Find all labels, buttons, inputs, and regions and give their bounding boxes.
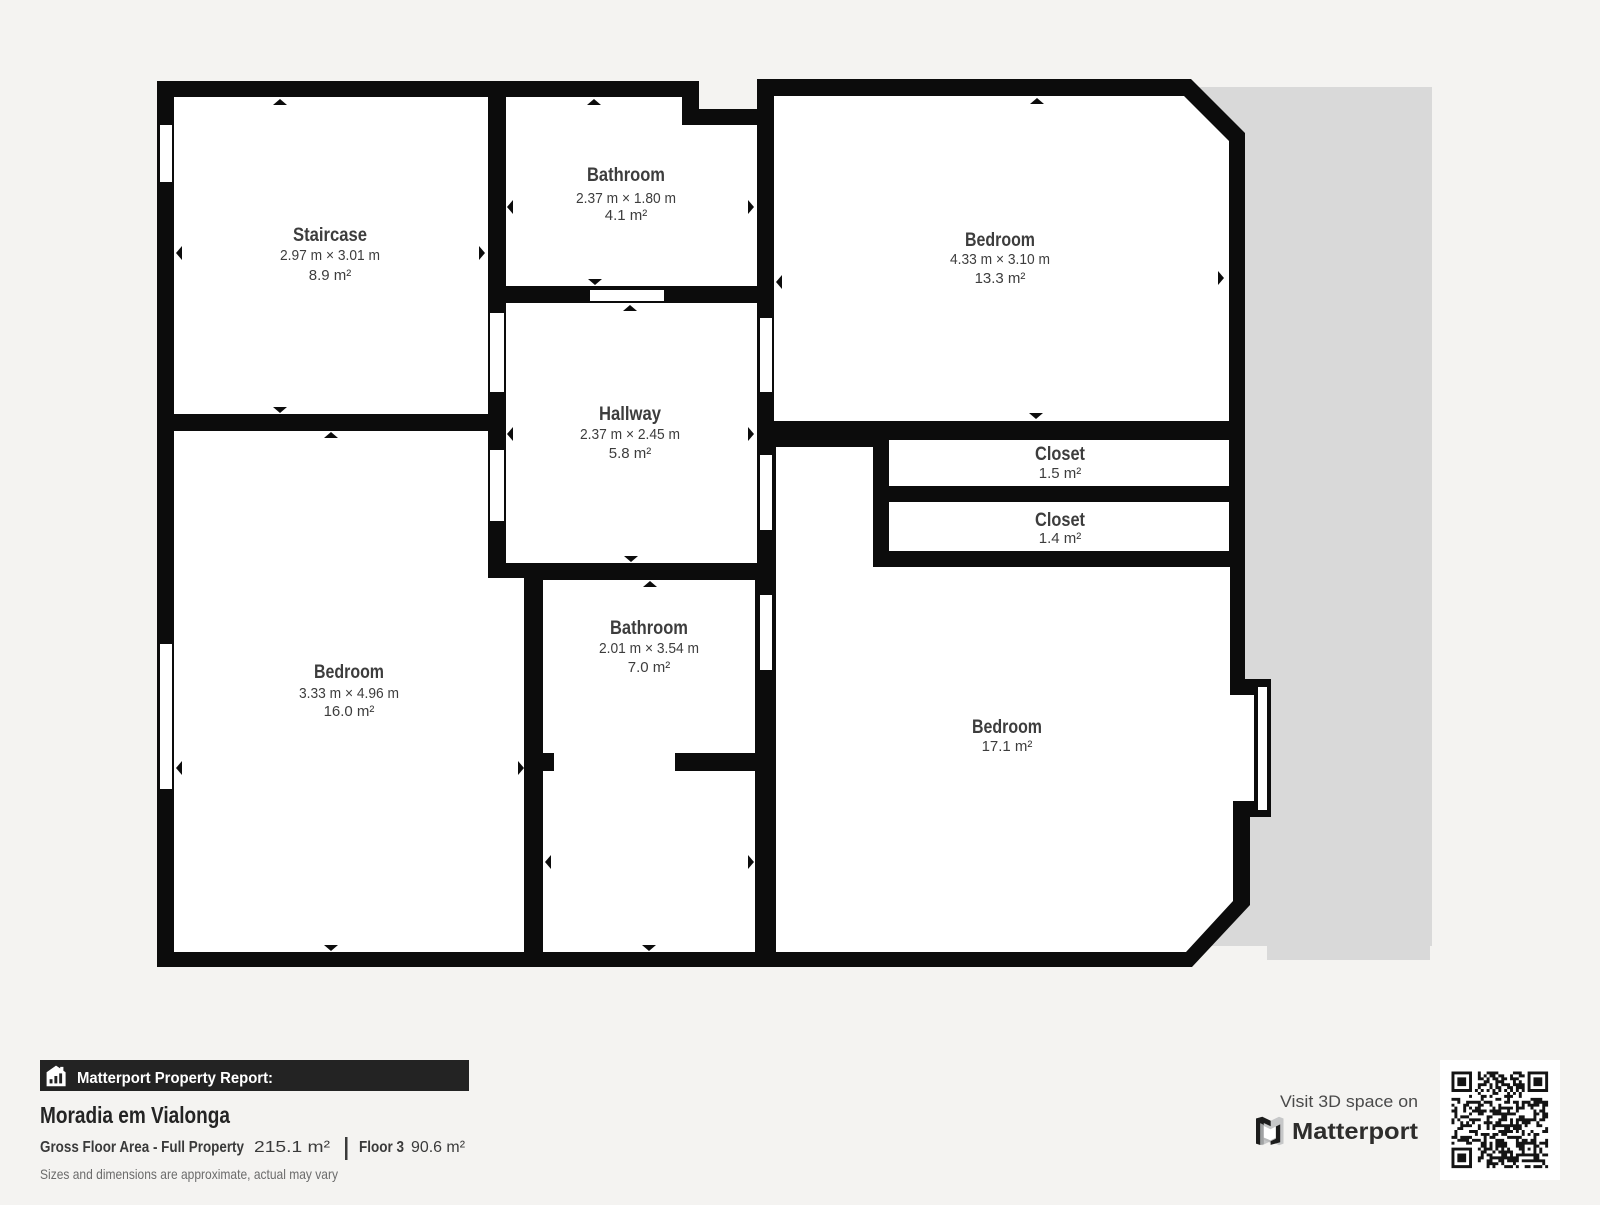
svg-text:2.37 m × 2.45 m: 2.37 m × 2.45 m: [580, 426, 680, 443]
svg-text:Gross Floor Area - Full Proper: Gross Floor Area - Full Property: [40, 1139, 244, 1156]
svg-text:1.4 m²: 1.4 m²: [1039, 530, 1082, 547]
svg-text:2.97 m × 3.01 m: 2.97 m × 3.01 m: [280, 247, 380, 264]
svg-text:17.1 m²: 17.1 m²: [982, 738, 1033, 755]
svg-text:5.8 m²: 5.8 m²: [609, 445, 652, 462]
svg-text:Hallway: Hallway: [599, 404, 661, 425]
svg-text:90.6 m²: 90.6 m²: [411, 1139, 466, 1156]
svg-text:3.33 m × 4.96 m: 3.33 m × 4.96 m: [299, 685, 399, 702]
svg-text:Closet: Closet: [1035, 510, 1086, 531]
svg-text:Bathroom: Bathroom: [610, 618, 688, 639]
svg-text:8.9 m²: 8.9 m²: [309, 267, 352, 284]
svg-text:4.33 m × 3.10 m: 4.33 m × 3.10 m: [950, 251, 1050, 268]
svg-text:Bedroom: Bedroom: [965, 230, 1035, 251]
svg-text:13.3 m²: 13.3 m²: [975, 270, 1026, 287]
svg-text:Closet: Closet: [1035, 444, 1086, 465]
svg-text:Bedroom: Bedroom: [314, 662, 384, 683]
svg-text:7.0 m²: 7.0 m²: [628, 659, 671, 676]
svg-text:Matterport Property Report:: Matterport Property Report:: [77, 1070, 273, 1087]
svg-text:Sizes and dimensions are appro: Sizes and dimensions are approximate, ac…: [40, 1166, 338, 1182]
svg-text:2.37 m × 1.80 m: 2.37 m × 1.80 m: [576, 190, 676, 207]
svg-text:Bedroom: Bedroom: [972, 717, 1042, 738]
svg-text:215.1 m²: 215.1 m²: [254, 1139, 331, 1156]
svg-text:1.5 m²: 1.5 m²: [1039, 465, 1082, 482]
svg-text:4.1 m²: 4.1 m²: [605, 207, 648, 224]
svg-text:Visit 3D space on: Visit 3D space on: [1280, 1092, 1418, 1111]
svg-text:Bathroom: Bathroom: [587, 165, 665, 186]
svg-text:16.0 m²: 16.0 m²: [324, 703, 375, 720]
svg-text:Staircase: Staircase: [293, 225, 367, 246]
svg-text:Floor 3: Floor 3: [359, 1139, 404, 1156]
svg-text:2.01 m × 3.54 m: 2.01 m × 3.54 m: [599, 640, 699, 657]
svg-text:Moradia em Vialonga: Moradia em Vialonga: [40, 1102, 230, 1128]
svg-text:Matterport: Matterport: [1292, 1118, 1418, 1144]
